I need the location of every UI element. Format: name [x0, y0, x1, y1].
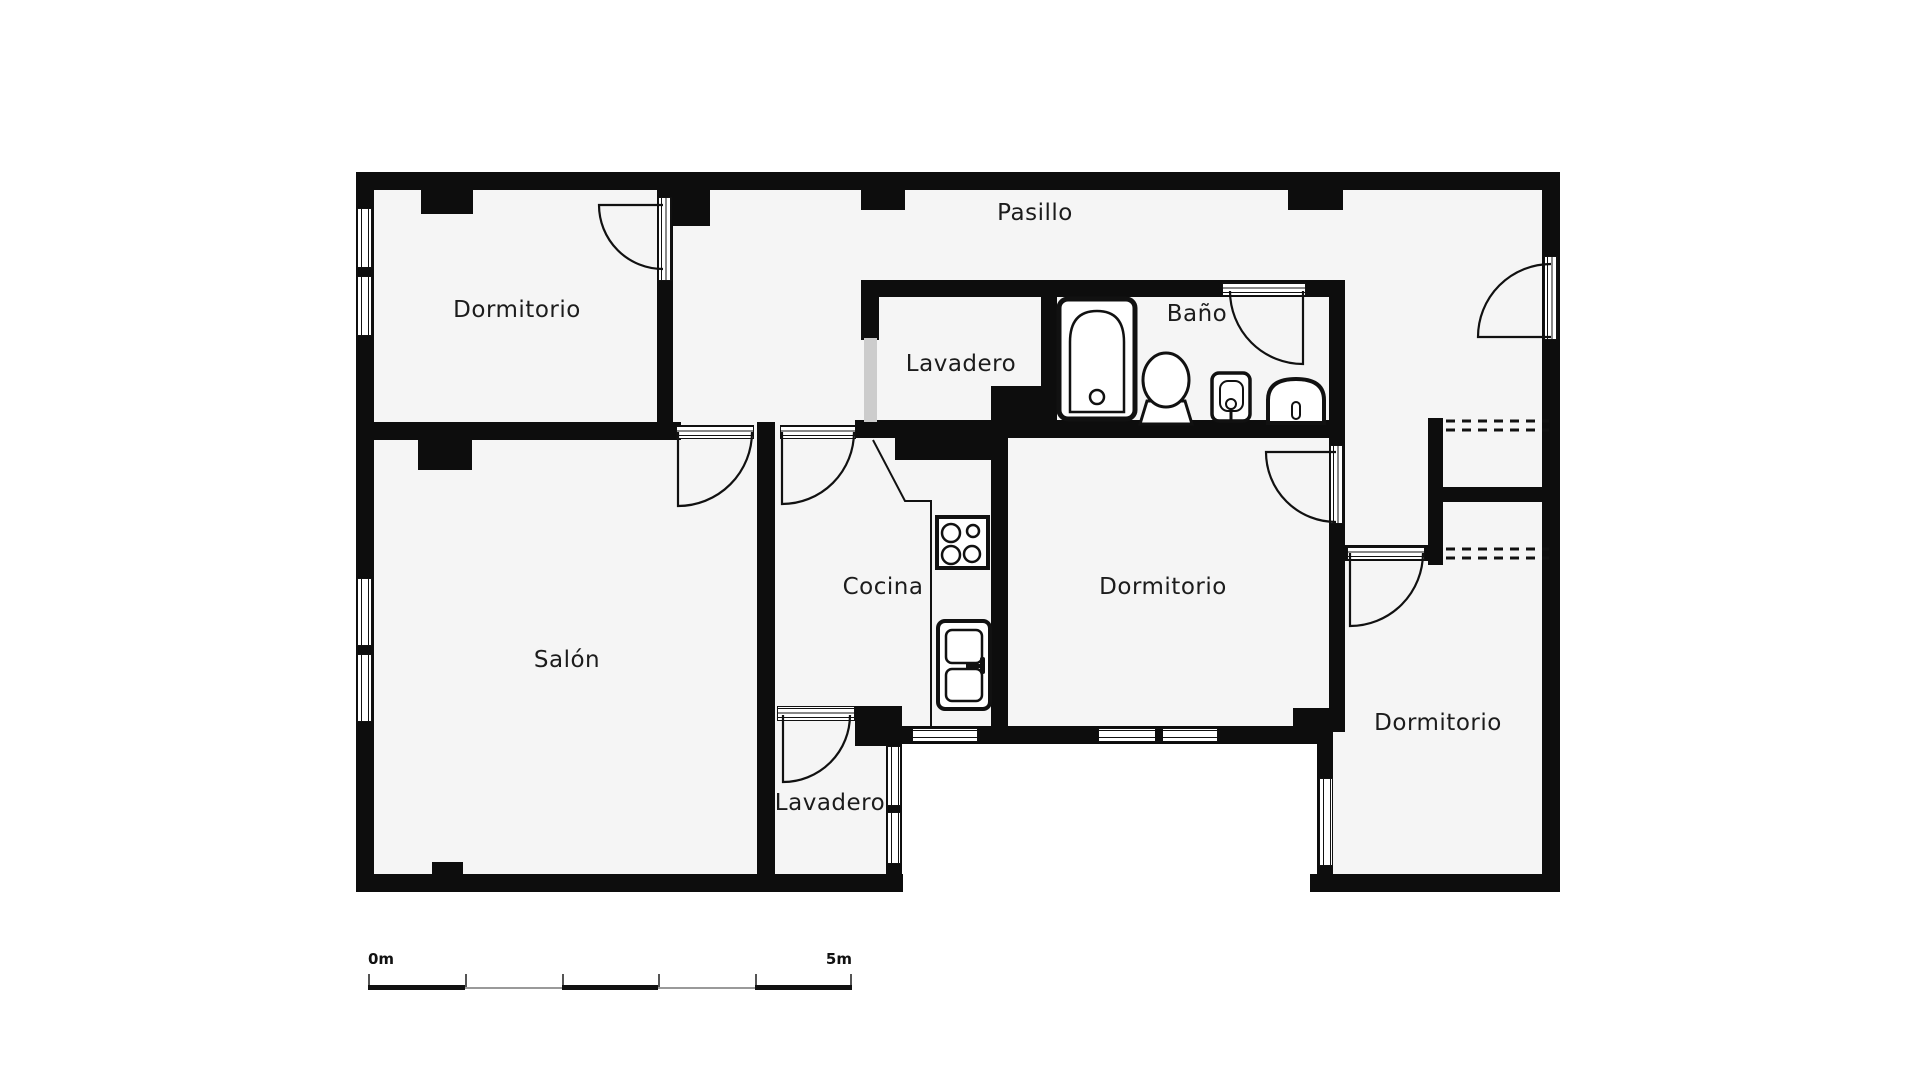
wall-segment [1041, 297, 1057, 423]
wall-segment [356, 172, 1560, 190]
door-leaf-icon [676, 425, 754, 439]
exterior-notch [902, 744, 1317, 892]
scale-tick [658, 974, 660, 987]
window-icon [357, 276, 372, 336]
wall-segment [1428, 487, 1560, 502]
window-icon [357, 578, 372, 646]
room-label-lavadero-1: Lavadero [906, 351, 1016, 377]
door-leaf-icon [1347, 546, 1425, 560]
wall-segment [757, 422, 775, 892]
room-label-cocina: Cocina [843, 574, 924, 600]
room-label-dormitorio-3: Dormitorio [1374, 710, 1502, 736]
scale-segment [368, 985, 465, 990]
window-icon [357, 208, 372, 268]
scale-end-label: 5m [826, 950, 852, 968]
scale-segment [562, 985, 658, 990]
wall-segment [991, 455, 1008, 730]
wall-pillar [432, 862, 463, 876]
floor-plan-canvas: Pasillo Dormitorio Lavadero Baño Salón C… [0, 0, 1920, 1080]
wall-segment [356, 874, 903, 892]
wall-segment [1310, 874, 1560, 892]
wall-pillar [418, 438, 472, 470]
room-label-salon: Salón [534, 647, 600, 673]
window-mullion [1155, 729, 1163, 741]
scale-segment [465, 987, 562, 989]
scale-segment [658, 987, 755, 989]
scale-bar: 0m 5m [368, 950, 852, 992]
scale-segment [755, 985, 852, 990]
wall-segment [991, 386, 1043, 422]
door-leaf-icon [658, 197, 672, 281]
wall-pillar [1288, 190, 1343, 210]
wall-segment [356, 422, 681, 440]
room-label-dormitorio-2: Dormitorio [1099, 574, 1227, 600]
door-leaf-icon [1330, 445, 1344, 524]
room-label-banyo: Baño [1167, 301, 1228, 327]
door-leaf-icon [777, 706, 855, 721]
window-icon [887, 812, 901, 864]
wall-pillar [672, 190, 710, 226]
room-label-pasillo: Pasillo [997, 200, 1073, 226]
wall-pillar [421, 188, 473, 214]
door-leaf-icon [780, 425, 856, 439]
window-icon [887, 746, 901, 806]
window-icon [1319, 778, 1333, 866]
room-label-dormitorio-1: Dormitorio [453, 297, 581, 323]
room-label-lavadero-2: Lavadero [775, 790, 885, 816]
wall-segment [855, 420, 1345, 438]
wall-pillar [861, 190, 905, 210]
scale-tick [465, 974, 467, 987]
scale-start-label: 0m [368, 950, 394, 968]
window-icon [912, 728, 978, 742]
door-leaf-icon [1544, 256, 1558, 340]
wall-opening [864, 338, 877, 422]
door-leaf-icon [1222, 282, 1306, 296]
window-icon [357, 654, 372, 722]
